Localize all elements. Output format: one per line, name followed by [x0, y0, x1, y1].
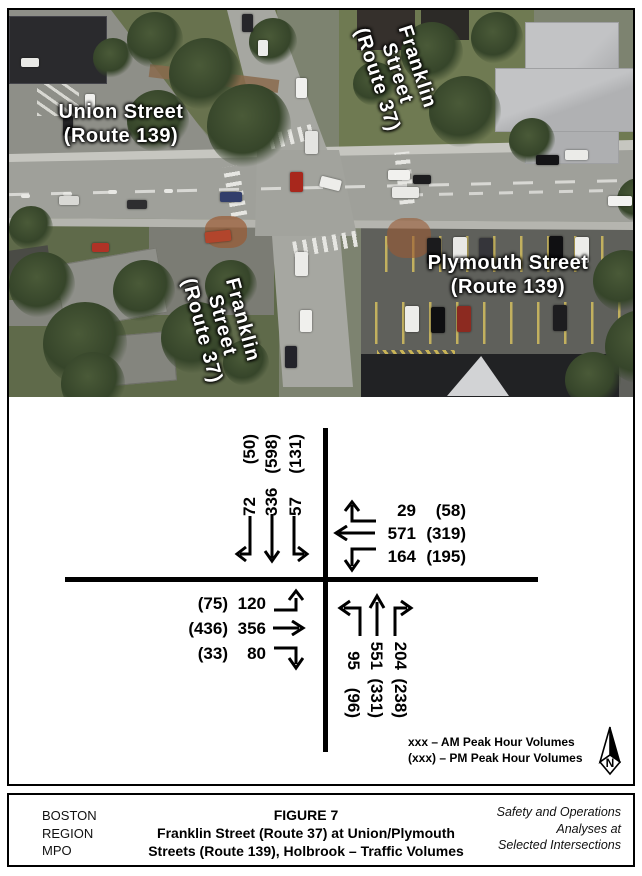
am-volume: 356: [228, 619, 266, 639]
northbound-right-turn-arrow: [389, 596, 417, 638]
title-block: BOSTON REGION MPO FIGURE 7 Franklin Stre…: [7, 793, 635, 867]
north-arrow-icon: N: [597, 726, 623, 776]
legend-pm: (xxx) – PM Peak Hour Volumes: [408, 751, 583, 767]
car: [608, 196, 632, 206]
car: [290, 172, 303, 192]
westbound-through-arrow: [331, 525, 377, 541]
am-volume: 95: [343, 638, 363, 670]
pm-volume: (598): [262, 434, 282, 482]
car: [295, 252, 308, 276]
tree: [471, 12, 523, 64]
pavement-arrow: [108, 190, 117, 194]
project-name: Safety and Operations Analyses at Select…: [497, 804, 621, 854]
car: [296, 78, 307, 98]
volume-legend: xxx – AM Peak Hour Volumes (xxx) – PM Pe…: [408, 735, 583, 766]
pm-volume: (195): [416, 547, 466, 567]
southbound-right-volume: 72(50): [238, 434, 262, 514]
am-volume: 80: [228, 644, 266, 664]
eastbound-left-turn-arrow: [272, 588, 304, 614]
tree: [249, 18, 297, 66]
pm-volume: (33): [180, 644, 228, 664]
car: [565, 150, 588, 160]
car: [431, 307, 445, 333]
northbound-right-volume: 204(238): [388, 638, 412, 726]
org-line: REGION: [42, 825, 97, 843]
eastbound-through-volume: (436)356: [180, 616, 266, 641]
org-name: BOSTON REGION MPO: [42, 807, 97, 860]
am-volume: 72: [240, 482, 260, 516]
northbound-through-volume: 551(331): [364, 638, 388, 726]
project-line: Selected Intersections: [497, 837, 621, 854]
diagram-road-horizontal: [65, 577, 538, 582]
street-label-line: (Route 139): [31, 124, 211, 148]
pavement-arrow: [21, 194, 30, 198]
pm-volume: (75): [180, 594, 228, 614]
car: [553, 305, 567, 331]
building: [9, 16, 107, 84]
am-volume: 336: [262, 482, 282, 516]
tree: [113, 260, 175, 322]
car: [536, 155, 559, 165]
am-volume: 571: [384, 524, 416, 544]
am-volume: 551: [366, 638, 386, 670]
figure-title-line: Franklin Street (Route 37) at Union/Plym…: [101, 824, 511, 842]
car: [258, 40, 268, 56]
eastbound-left-volume: (75)120: [180, 591, 266, 616]
pm-volume: (58): [416, 501, 466, 521]
car: [305, 131, 318, 154]
street-label-line: Union Street: [31, 100, 211, 124]
eastbound-volumes: (75)120 (436)356 (33)80: [180, 591, 266, 666]
pm-volume: (96): [343, 670, 363, 718]
westbound-right-volume: 164(195): [384, 545, 466, 568]
pm-volume: (50): [240, 434, 260, 482]
westbound-volumes: 29(58) 571(319) 164(195): [384, 499, 466, 568]
am-volume: 29: [384, 501, 416, 521]
northbound-left-volume: 95(96): [341, 638, 365, 726]
car: [220, 192, 242, 202]
project-line: Safety and Operations: [497, 804, 621, 821]
figure-number: FIGURE 7: [101, 806, 511, 824]
pm-volume: (436): [180, 619, 228, 639]
diagram-road-vertical: [323, 428, 328, 752]
car: [405, 306, 419, 332]
pm-volume: (319): [416, 524, 466, 544]
street-label-rotated: Franklin Street (Route 37): [350, 12, 443, 134]
car: [392, 187, 419, 198]
building: [495, 68, 633, 132]
street-label-franklin-north: Franklin Street (Route 37): [342, 13, 452, 133]
am-volume: 57: [286, 482, 306, 516]
pm-volume: (331): [366, 670, 386, 718]
tree: [9, 206, 53, 250]
am-volume: 164: [384, 547, 416, 567]
figure-title: FIGURE 7 Franklin Street (Route 37) at U…: [101, 806, 511, 860]
tree: [207, 84, 291, 168]
legend-am: xxx – AM Peak Hour Volumes: [408, 735, 583, 751]
westbound-left-turn-arrow: [334, 498, 378, 524]
street-label-franklin-south: Franklin Street (Route 37): [167, 265, 277, 385]
pm-volume: (131): [286, 434, 306, 482]
figure-page: Union Street (Route 139) Franklin Street…: [0, 0, 642, 876]
street-label-line: (Route 139): [413, 275, 603, 299]
org-line: BOSTON: [42, 807, 97, 825]
westbound-right-turn-arrow: [334, 544, 378, 576]
car: [413, 175, 431, 184]
car: [59, 196, 79, 205]
north-label: N: [597, 756, 623, 770]
street-label-rotated: Franklin Street (Route 37): [178, 265, 267, 385]
car: [92, 243, 109, 252]
northbound-left-turn-arrow: [334, 596, 366, 638]
street-label-line: Plymouth Street: [413, 251, 603, 275]
aerial-photo: Union Street (Route 139) Franklin Street…: [9, 10, 633, 397]
eastbound-right-volume: (33)80: [180, 641, 266, 666]
car: [457, 306, 471, 332]
car: [285, 346, 297, 368]
figure-title-line: Streets (Route 139), Holbrook – Traffic …: [101, 842, 511, 860]
figure-panel: Union Street (Route 139) Franklin Street…: [7, 8, 635, 786]
am-volume: 204: [390, 638, 410, 670]
eastbound-through-arrow: [271, 620, 307, 636]
southbound-through-volume: 336(598): [260, 434, 284, 514]
project-line: Analyses at: [497, 821, 621, 838]
southbound-left-volume: 57(131): [284, 434, 308, 514]
tree: [93, 38, 133, 78]
pavement-arrow: [164, 189, 173, 193]
street-label-union: Union Street (Route 139): [31, 100, 211, 148]
am-volume: 120: [228, 594, 266, 614]
northbound-through-arrow: [365, 592, 389, 638]
car: [21, 58, 39, 67]
westbound-through-volume: 571(319): [384, 522, 466, 545]
car: [242, 14, 253, 32]
eastbound-right-turn-arrow: [272, 642, 304, 674]
car: [300, 310, 312, 332]
westbound-left-volume: 29(58): [384, 499, 466, 522]
pm-volume: (238): [390, 670, 410, 718]
org-line: MPO: [42, 842, 97, 860]
southbound-left-turn-arrow: [278, 514, 312, 570]
car: [127, 200, 147, 209]
street-label-plymouth: Plymouth Street (Route 139): [413, 251, 603, 299]
car: [388, 170, 410, 180]
